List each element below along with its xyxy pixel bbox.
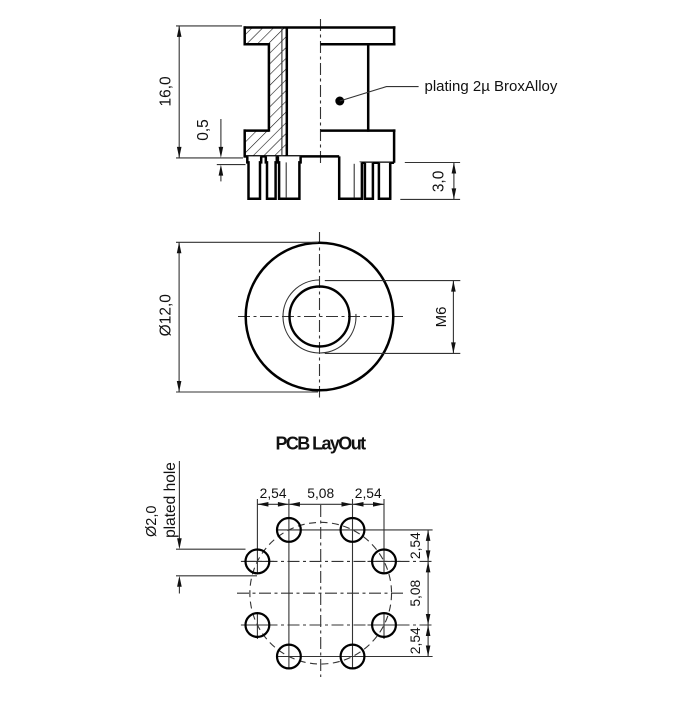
svg-text:PCB LayOut: PCB LayOut	[275, 434, 366, 454]
svg-text:2,54: 2,54	[260, 486, 287, 501]
svg-text:Ø12,0: Ø12,0	[158, 294, 175, 337]
svg-text:2,54: 2,54	[408, 532, 423, 559]
svg-text:2,54: 2,54	[408, 627, 423, 654]
svg-text:5,08: 5,08	[408, 579, 423, 606]
svg-text:3,0: 3,0	[430, 170, 447, 192]
svg-text:Ø2,0: Ø2,0	[144, 506, 160, 537]
svg-text:plating 2µ BroxAlloy: plating 2µ BroxAlloy	[425, 78, 558, 95]
svg-text:0,5: 0,5	[195, 119, 212, 141]
svg-text:plated hole: plated hole	[162, 462, 179, 538]
svg-text:5,08: 5,08	[307, 486, 334, 501]
svg-text:2,54: 2,54	[355, 486, 382, 501]
svg-text:16,0: 16,0	[157, 76, 174, 107]
svg-text:M6: M6	[433, 307, 450, 328]
